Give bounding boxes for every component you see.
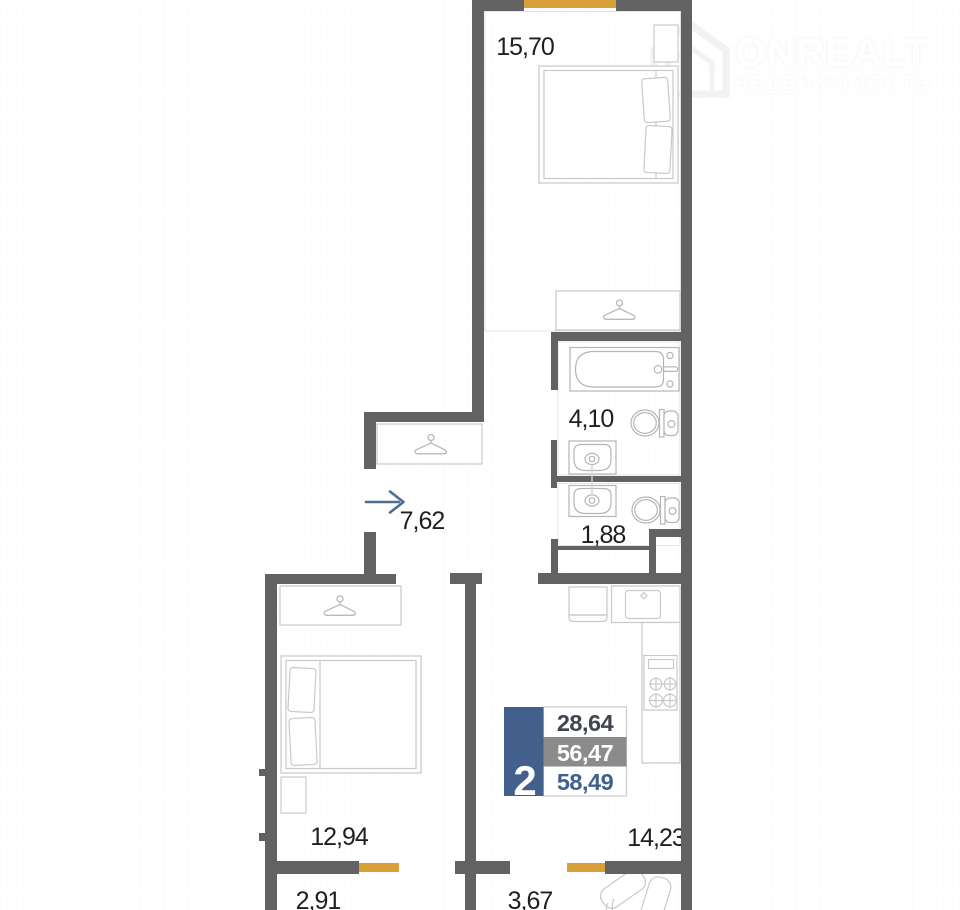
svg-text:7,62: 7,62	[400, 507, 445, 535]
svg-text:3,67: 3,67	[508, 887, 553, 910]
svg-text:4,10: 4,10	[569, 405, 614, 433]
svg-text:56,47: 56,47	[557, 740, 614, 766]
svg-text:2,91: 2,91	[296, 887, 341, 910]
svg-text:2: 2	[513, 757, 536, 804]
svg-text:1,88: 1,88	[581, 521, 626, 549]
svg-text:ONREALT: ONREALT	[735, 31, 929, 75]
svg-text:12,94: 12,94	[310, 823, 369, 851]
svg-text:58,49: 58,49	[557, 769, 614, 795]
svg-text:15,70: 15,70	[496, 33, 554, 61]
svg-text:14,23: 14,23	[627, 824, 685, 852]
svg-text:28,64: 28,64	[557, 710, 614, 736]
svg-text:НЕДВИЖИМОСТЬ: НЕДВИЖИМОСТЬ	[735, 73, 932, 93]
